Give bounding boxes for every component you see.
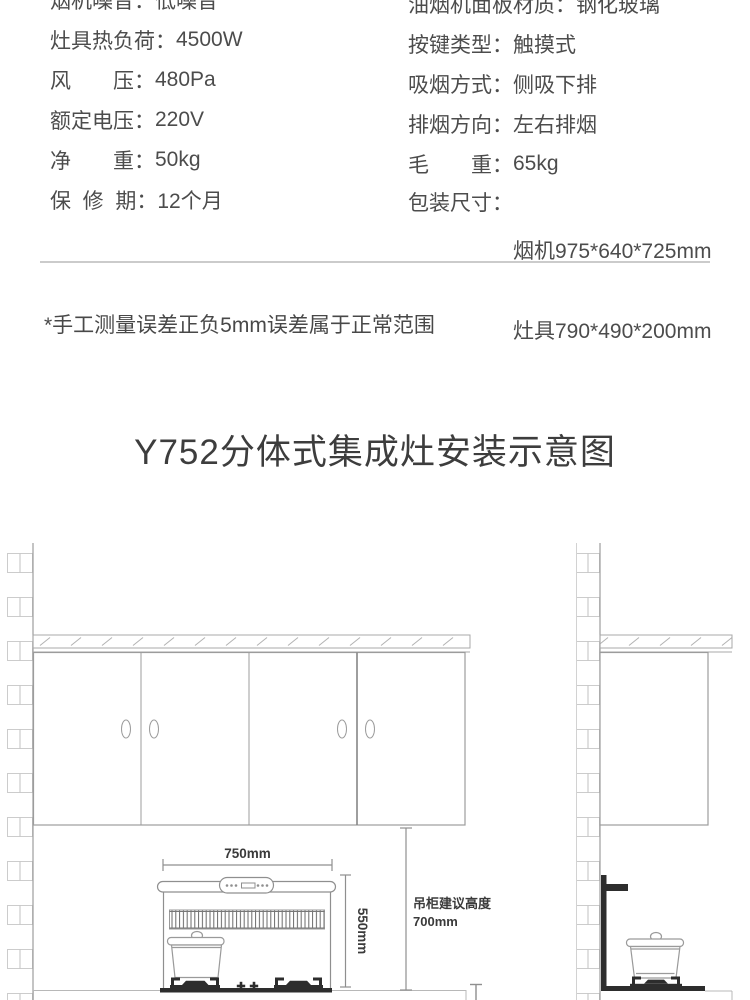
spec-value: 4500W (176, 28, 243, 52)
left-cabinet-top-board (33, 635, 470, 652)
spec-label: 灶具热负荷： (50, 25, 176, 55)
right-cabinet-top-board (600, 635, 732, 652)
spec-row-button-type: 按键类型：触摸式 (408, 24, 711, 64)
left-wall-tiles (7, 543, 33, 1000)
package-size-stove: 灶具790*490*200mm (513, 316, 711, 348)
measurement-tolerance-note: *手工测量误差正负5mm误差属于正常范围 (44, 309, 435, 339)
spec-row-net-weight: 净 重：50kg (50, 140, 243, 180)
spec-label: 风 压： (50, 65, 155, 95)
spec-row-gross-weight: 毛 重：65kg (408, 144, 711, 184)
spec-label: 保 修 期： (50, 185, 157, 215)
spec-label: 净 重： (50, 145, 155, 175)
pot-front (168, 932, 225, 978)
spec-label: 毛 重： (408, 149, 513, 179)
spec-column-left: 烟机噪音：低噪音 灶具热负荷：4500W 风 压：480Pa 额定电压：220V… (50, 0, 243, 220)
spec-label: 排烟方向： (408, 109, 513, 139)
spec-row-warranty: 保 修 期：12个月 (50, 180, 243, 220)
hood-height-label: 550mm (355, 908, 370, 955)
section-divider (40, 261, 710, 263)
countertop-tick (470, 985, 482, 1000)
pot-side (627, 933, 684, 979)
spec-label: 烟机噪音： (50, 0, 155, 15)
spec-row-heat-load: 灶具热负荷：4500W (50, 20, 243, 60)
spec-value: 低噪音 (155, 0, 218, 15)
hood-height-dimension (340, 875, 351, 987)
spec-label: 吸烟方式： (408, 69, 513, 99)
spec-value: 左右排烟 (513, 109, 597, 139)
right-wall-tiles (576, 543, 600, 1000)
spec-value: 50kg (155, 148, 201, 172)
cabinet-height-value: 700mm (413, 914, 458, 929)
cabinet-height-note: 吊柜建议高度 (413, 896, 492, 911)
cabinet-height-dimension (400, 828, 412, 990)
spec-value: 钢化玻璃 (576, 0, 660, 19)
burner-grates-front (170, 978, 323, 989)
spec-row-package-size: 包装尺寸： 烟机975*640*725mm 灶具790*490*200mm (408, 184, 711, 396)
spec-label: 包装尺寸： (408, 184, 513, 220)
spec-value: 12个月 (157, 185, 222, 215)
spec-value: 触摸式 (513, 29, 576, 59)
cooktop-surface (160, 988, 332, 993)
spec-row-exhaust-direction: 排烟方向：左右排烟 (408, 104, 711, 144)
spec-label: 油烟机面板材质： (408, 0, 576, 19)
spec-value: 220V (155, 108, 204, 132)
countertop-side-edge (705, 991, 732, 1000)
spec-row-noise: 烟机噪音：低噪音 (50, 0, 243, 20)
spec-label: 额定电压： (50, 105, 155, 135)
spec-value: 侧吸下排 (513, 69, 597, 99)
spec-row-panel-material: 油烟机面板材质：钢化玻璃 (408, 0, 711, 24)
product-detail-sheet: 烟机噪音：低噪音 灶具热负荷：4500W 风 压：480Pa 额定电压：220V… (0, 0, 750, 1000)
hood-width-label: 750mm (224, 846, 271, 861)
hanging-cabinets-front (34, 653, 466, 826)
package-size-hood: 烟机975*640*725mm (513, 236, 711, 268)
spec-value: 烟机975*640*725mm 灶具790*490*200mm (513, 184, 711, 396)
hanging-cabinet-side (600, 653, 708, 826)
installation-diagram-title: Y752分体式集成灶安装示意图 (0, 424, 750, 475)
spec-value: 65kg (513, 152, 559, 176)
spec-label: 按键类型： (408, 29, 513, 59)
spec-column-right: 油烟机面板材质：钢化玻璃 按键类型：触摸式 吸烟方式：侧吸下排 排烟方向：左右排… (408, 0, 711, 396)
hood-grille (170, 910, 325, 929)
installation-diagram: 吊柜建议高度 700mm 750mm 550mm (0, 540, 750, 1000)
spec-row-suction-mode: 吸烟方式：侧吸下排 (408, 64, 711, 104)
spec-row-wind-pressure: 风 压：480Pa (50, 60, 243, 100)
spec-value: 480Pa (155, 68, 216, 92)
spec-row-voltage: 额定电压：220V (50, 100, 243, 140)
